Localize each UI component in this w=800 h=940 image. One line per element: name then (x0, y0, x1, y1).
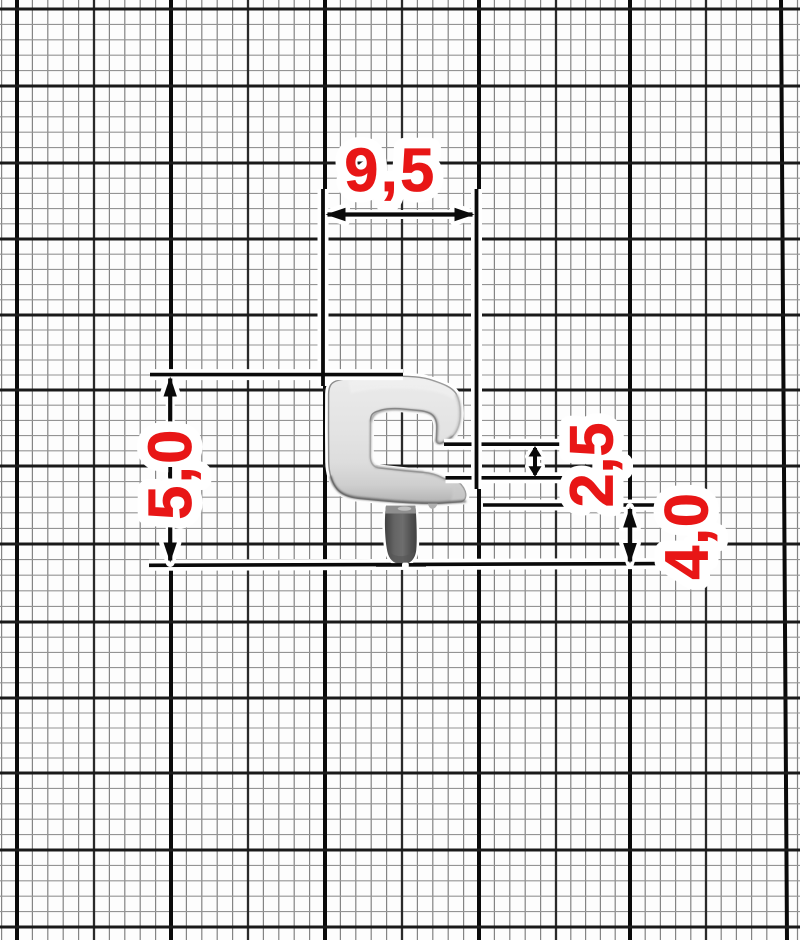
svg-text:4,0: 4,0 (653, 492, 721, 579)
svg-text:9,5: 9,5 (344, 136, 436, 204)
svg-text:2,5: 2,5 (558, 423, 626, 508)
